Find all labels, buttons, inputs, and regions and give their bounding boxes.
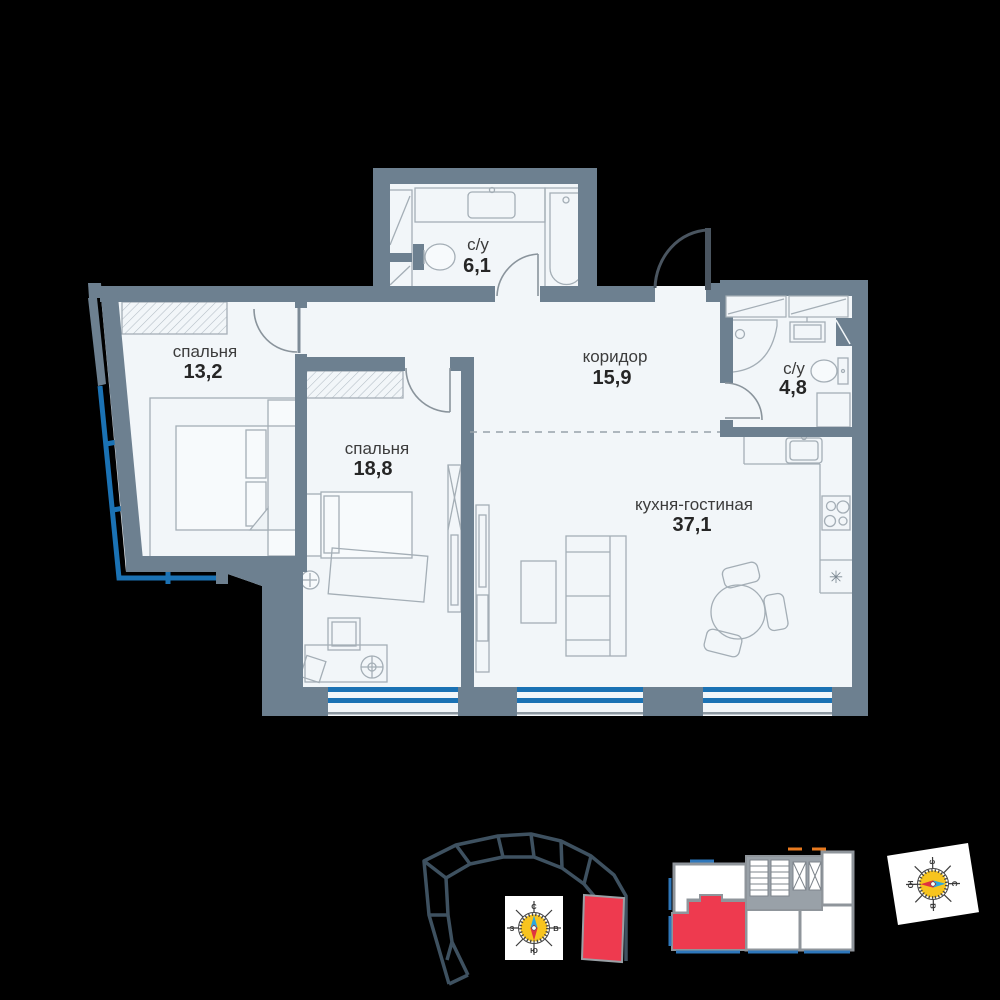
wardrobe-icon bbox=[302, 371, 403, 398]
compass-icon: С В Ю З bbox=[505, 896, 563, 960]
compass-west: З bbox=[510, 924, 515, 933]
floor-plan-canvas: ✳ спальня 13,2 спальня 18,8 с/у 6,1 кори… bbox=[0, 0, 1000, 1000]
compass-north: С bbox=[950, 881, 959, 887]
minimap-unit bbox=[800, 905, 853, 950]
side-table-icon bbox=[301, 571, 319, 589]
room-label-bathroom-right: с/у bbox=[783, 359, 805, 378]
wardrobe-icon bbox=[122, 302, 227, 334]
minimap-floorplate: С В Ю З bbox=[670, 843, 979, 952]
compass-south: Ю bbox=[530, 946, 538, 955]
room-label-bathroom-top: с/у bbox=[467, 235, 489, 254]
room-area-bathroom-right: 4,8 bbox=[779, 377, 807, 399]
appliance-symbol: ✳ bbox=[829, 568, 843, 587]
apartment-plan: ✳ спальня 13,2 спальня 18,8 с/у 6,1 кори… bbox=[88, 168, 868, 716]
room-area-bedroom-small: 13,2 bbox=[184, 361, 223, 383]
room-area-corridor: 15,9 bbox=[593, 367, 632, 389]
minimap-building: С В Ю З bbox=[424, 834, 626, 984]
toilet-icon bbox=[413, 244, 455, 270]
window-icon bbox=[517, 687, 643, 692]
minimap-unit bbox=[746, 905, 800, 950]
compass-east: В bbox=[553, 924, 559, 933]
room-label-corridor: коридор bbox=[583, 347, 648, 366]
room-area-bathroom-top: 6,1 bbox=[463, 255, 491, 277]
window-icon bbox=[328, 687, 458, 692]
minimap-unit-red bbox=[582, 895, 624, 962]
compass-west: З bbox=[928, 860, 937, 865]
entrance-door-arc bbox=[655, 230, 708, 288]
room-area-kitchen-living: 37,1 bbox=[673, 514, 712, 536]
room-label-kitchen-living: кухня-гостиная bbox=[635, 495, 753, 514]
compass-south: Ю bbox=[906, 880, 915, 888]
minimap-unit bbox=[822, 852, 853, 905]
room-label-bedroom-small: спальня bbox=[173, 342, 238, 361]
window-icon bbox=[703, 687, 832, 692]
compass-icon: С В Ю З bbox=[887, 843, 979, 925]
stair-core bbox=[746, 856, 822, 910]
compass-north: С bbox=[531, 902, 537, 911]
room-label-bedroom-large: спальня bbox=[345, 439, 410, 458]
compass-east: В bbox=[928, 903, 937, 909]
room-area-bedroom-large: 18,8 bbox=[354, 458, 393, 480]
entrance-door-leaf bbox=[705, 228, 711, 290]
entrance-door bbox=[655, 228, 711, 290]
office-chair-icon bbox=[361, 656, 383, 678]
